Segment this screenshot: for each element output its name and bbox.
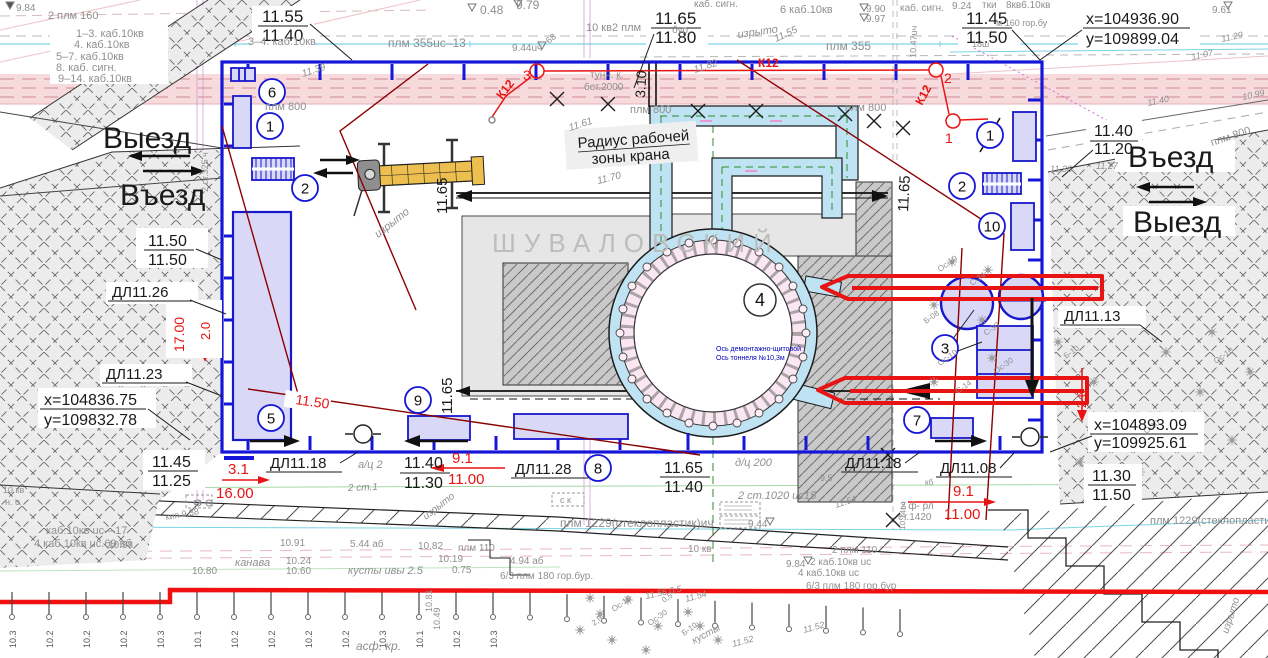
map-label: 10.47uч: [908, 25, 919, 58]
fence-post-label: 10.1: [193, 630, 203, 648]
map-label: 10.91: [280, 538, 305, 549]
map-label: 11.45: [152, 454, 191, 471]
map-label: 2 плм 110: [832, 545, 878, 556]
map-label: 9.97: [866, 14, 886, 25]
map-label: 2 ст.1020 uc15: [737, 490, 817, 502]
map-label: 1: [945, 130, 953, 146]
map-label: 10 кв2 плм: [586, 22, 641, 34]
map-label: 17.00: [171, 317, 187, 352]
map-label: 11.30: [1092, 468, 1131, 485]
fence-post-label: 10.2: [452, 630, 462, 648]
map-label: 2 ст.1: [347, 482, 378, 494]
map-label: К12: [758, 56, 779, 70]
map-label: 0.75: [452, 565, 472, 576]
map-label: 3–4. каб.10кв: [248, 36, 316, 48]
fence-post-label: 10.2: [304, 630, 314, 648]
map-label: 11.50: [1092, 487, 1131, 504]
map-label: 11.40: [1094, 123, 1133, 140]
map-label: 2 каб.10кв uc: [810, 556, 871, 568]
callout-number: 9: [414, 393, 422, 410]
map-label: 11.55: [262, 7, 303, 26]
callout-number: 2: [301, 181, 309, 198]
fence-post-label: 10.3: [8, 630, 18, 648]
map-label: 11.30: [404, 475, 443, 492]
map-label: 11.65: [439, 378, 456, 414]
map-label: ДЛ11.13: [1064, 308, 1120, 325]
map-label: кусты ивы 2.5: [348, 565, 424, 577]
map-label: 8кв6.10кв: [1006, 0, 1050, 11]
map-label: кб: [925, 478, 934, 487]
map-label: 10.60: [286, 566, 311, 577]
map-label: 11.65: [434, 178, 451, 214]
map-label: 11.27: [1096, 161, 1119, 171]
map-label: 16.00: [216, 485, 254, 502]
map-label: 10.19: [438, 554, 463, 565]
callout-number: 1: [266, 119, 274, 136]
site-plan-drawing: 6125987310214 10.310.210.210.210.310.110…: [0, 0, 1268, 658]
map-label: плм 355uc–13: [388, 36, 466, 50]
fence-post-label: 10.1: [415, 630, 425, 648]
map-label: н. о: [5, 497, 20, 507]
watermark-text: ШУВАЛОВСКИЙ: [492, 228, 780, 258]
map-label: бур.: [672, 24, 691, 36]
map-label: 18ш: [972, 39, 989, 49]
map-label: Ось демонтажно-щитовой: [716, 345, 801, 353]
map-label: 3.1: [228, 461, 249, 478]
callout-number: 10: [984, 219, 1001, 236]
callout-number: 5: [267, 411, 275, 428]
fence-post-label: 10.2: [119, 630, 129, 648]
map-label: 11.00: [448, 471, 484, 488]
callout-number: 2: [958, 179, 966, 196]
map-label: каб. сигн.: [694, 0, 738, 10]
map-label: каб. сигн.: [900, 2, 944, 14]
map-label: 4 каб.10кв uc: [798, 567, 859, 579]
map-label: ДЛ11.18: [845, 455, 901, 472]
map-label: 0.48: [480, 3, 504, 17]
map-label: 4. каб.10кв: [74, 39, 130, 51]
map-label: 10.82: [418, 541, 443, 552]
road-label-enter-left: Въезд: [120, 179, 205, 212]
coord-bottom-left-y: y=109832.78: [44, 412, 137, 429]
map-label: 2: [944, 70, 952, 86]
map-label: ск: [193, 497, 202, 507]
map-label: тунн. к.: [590, 70, 623, 81]
callout-number: 1: [986, 128, 994, 145]
map-label: 11.40: [404, 455, 443, 472]
map-label: 2 плм 160: [48, 10, 99, 22]
map-label: асф. кр.: [356, 639, 401, 653]
coord-top-right-x: x=104936.90: [1086, 11, 1179, 28]
map-label: а/ц 2: [358, 459, 383, 471]
map-label: 9.5: [820, 473, 833, 483]
map-label: 11.25: [152, 473, 191, 490]
map-label: 11.65: [895, 175, 914, 212]
fence-post-label: 10.2: [267, 630, 277, 648]
road-label-exit-left: Выезд: [103, 122, 191, 155]
map-label: ДЛ11.23: [106, 366, 162, 383]
map-label: тки: [982, 0, 997, 11]
map-label: 9–14. каб.10кв: [58, 73, 132, 85]
fence-post-label: 10.2: [45, 630, 55, 648]
fence-post-label: 10.2: [82, 630, 92, 648]
map-label: д/ц 200: [735, 457, 773, 469]
map-label: 10.80: [192, 566, 217, 577]
map-label: 6/3 плм 180 гор.бур.: [500, 570, 593, 582]
fence-post-label: 10.3: [156, 630, 166, 648]
map-label: 9.44: [748, 519, 768, 530]
map-label: 9.44uч: [512, 43, 542, 54]
coord-bottom-right-y: y=109925.61: [1094, 435, 1187, 452]
map-label: 9.79: [516, 0, 540, 12]
map-label: 6 каб.10кв: [780, 4, 833, 16]
map-label: плм 1229(стеклопластик: [1150, 515, 1268, 527]
map-label: 9.24: [952, 1, 972, 12]
map-label: плм 110: [458, 543, 495, 554]
map-label: плм 800: [265, 101, 306, 113]
map-label: 10.49: [432, 607, 442, 630]
coord-bottom-left-x: x=104836.75: [44, 392, 137, 409]
map-label: 10.14uч: [898, 501, 908, 530]
map-label: 11.00: [944, 506, 980, 523]
road-label-exit-right: Выезд: [1133, 206, 1221, 239]
map-label: 6/3 плм 180 гор.бур: [806, 580, 897, 592]
map-label: с к: [560, 495, 571, 505]
map-label: 9.61: [1212, 5, 1232, 16]
fence-post-label: 10.2: [230, 630, 240, 648]
map-label: 9.1: [953, 483, 974, 500]
coord-top-right-y: y=109899.04: [1086, 31, 1179, 48]
map-label: 11.40: [664, 479, 703, 496]
map-label: 10.98: [108, 540, 133, 551]
callout-number: 8: [594, 461, 602, 478]
map-label: 3.10: [632, 70, 649, 98]
callout-number: 6: [268, 85, 276, 102]
map-label: ДЛ11.18: [270, 455, 326, 472]
map-label: Ось тоннеля №10,3м: [716, 355, 785, 362]
map-label: плм 800: [845, 102, 886, 114]
map-label: 11.50: [148, 233, 187, 250]
map-label: ДЛ11.08: [940, 460, 996, 477]
construction-site-plan: 6125987310214 10.310.210.210.210.310.110…: [0, 0, 1268, 658]
map-label: 11.50: [148, 252, 187, 269]
map-label: канава: [235, 557, 270, 569]
map-label: плм 355: [826, 39, 871, 53]
fence-post-label: 10.3: [489, 630, 499, 648]
map-label: 5.44 аб: [350, 538, 384, 550]
map-label: 10 кв: [688, 544, 712, 555]
map-label: 9.84: [16, 3, 36, 14]
map-label: ДЛ11.28: [515, 461, 571, 478]
map-label: каб.10кв uc—17: [46, 525, 127, 537]
map-label: плм 800: [630, 104, 671, 116]
map-label: 2.0: [1074, 390, 1089, 408]
map-label: 3: [523, 67, 531, 83]
map-label: плм 1229(стеклопластик)ич: [560, 516, 714, 530]
fence-post-label: 10.2: [341, 630, 351, 648]
map-label: 11.65: [664, 460, 703, 477]
coord-bottom-right-x: x=104893.09: [1094, 417, 1187, 434]
callout-number: 7: [913, 413, 921, 430]
map-label: 9.1: [452, 450, 473, 467]
road-label-enter-right: Въезд: [1128, 141, 1213, 174]
map-label: 10 кв: [3, 485, 24, 495]
map-label: 4.94 аб: [510, 555, 544, 567]
map-label: 2.0: [198, 322, 213, 340]
section-callout-number: 4: [755, 290, 765, 310]
map-label: бет.2000: [584, 81, 624, 93]
map-label: м 160 гор.бу: [996, 18, 1048, 28]
map-label: ДЛ11.26: [112, 284, 168, 301]
map-label: 11.36: [1050, 164, 1072, 174]
